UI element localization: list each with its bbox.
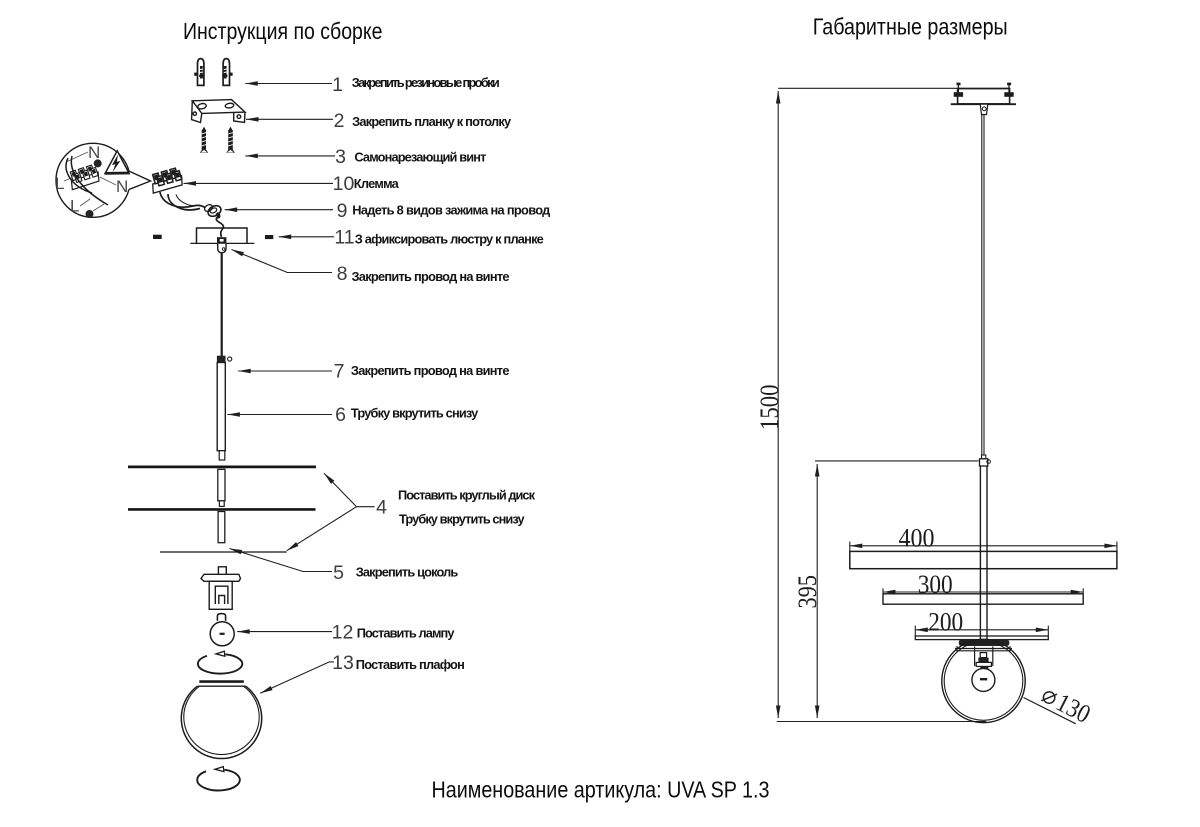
svg-text:Закрепить провод на винте: Закрепить провод на винте [351,363,510,378]
svg-text:Поставить плафон: Поставить плафон [356,657,465,672]
svg-text:L: L [55,174,64,193]
svg-text:9: 9 [337,200,348,222]
svg-text:Наименование артикула: UVA SP: Наименование артикула: UVA SP 1.3 [432,776,770,802]
svg-text:Надеть 8 видов зажима на прово: Надеть 8 видов зажима на провод [352,203,550,218]
svg-text:N: N [88,143,100,162]
svg-text:Закрепить провод на винте: Закрепить провод на винте [352,269,510,284]
svg-text:Габаритные размеры: Габаритные размеры [813,14,1008,40]
svg-text:З афиксировать люстру к планке: З афиксировать люстру к планке [355,231,544,246]
svg-text:2: 2 [334,110,345,132]
svg-text:7: 7 [334,361,345,383]
svg-text:13: 13 [332,652,354,674]
svg-text:Закрепить резиновые пробки: Закрепить резиновые пробки [352,75,500,90]
svg-text:6: 6 [335,404,346,426]
svg-text:300: 300 [918,570,953,599]
svg-text:130: 130 [1052,688,1095,729]
svg-text:N: N [116,177,128,196]
svg-text:Клемма: Клемма [354,176,400,191]
svg-text:3: 3 [335,146,346,168]
svg-text:Закрепить планку к потолку: Закрепить планку к потолку [352,114,512,129]
svg-text:8: 8 [337,263,348,285]
svg-text:11: 11 [334,227,354,249]
svg-text:1500: 1500 [755,385,784,431]
svg-text:Закрепить цоколь: Закрепить цоколь [356,564,459,579]
svg-text:200: 200 [928,607,963,636]
svg-text:Самонарезающий винт: Самонарезающий винт [354,150,486,165]
svg-text:Трубку вкрутить снизу: Трубку вкрутить снизу [399,511,525,526]
svg-text:L: L [70,197,79,216]
svg-text:400: 400 [899,523,935,552]
svg-text:Инструкция по сборке: Инструкция по сборке [183,18,383,44]
svg-text:395: 395 [793,575,822,609]
svg-text:10: 10 [333,173,355,195]
svg-text:5: 5 [333,562,344,584]
svg-text:Поставить круглый диск: Поставить круглый диск [398,487,536,502]
svg-text:1: 1 [332,74,343,96]
svg-text:Поставить лампу: Поставить лампу [357,625,456,640]
svg-text:12: 12 [332,622,354,644]
svg-text:Трубку вкрутить снизу: Трубку вкрутить снизу [351,405,479,420]
svg-text:4: 4 [376,497,387,519]
